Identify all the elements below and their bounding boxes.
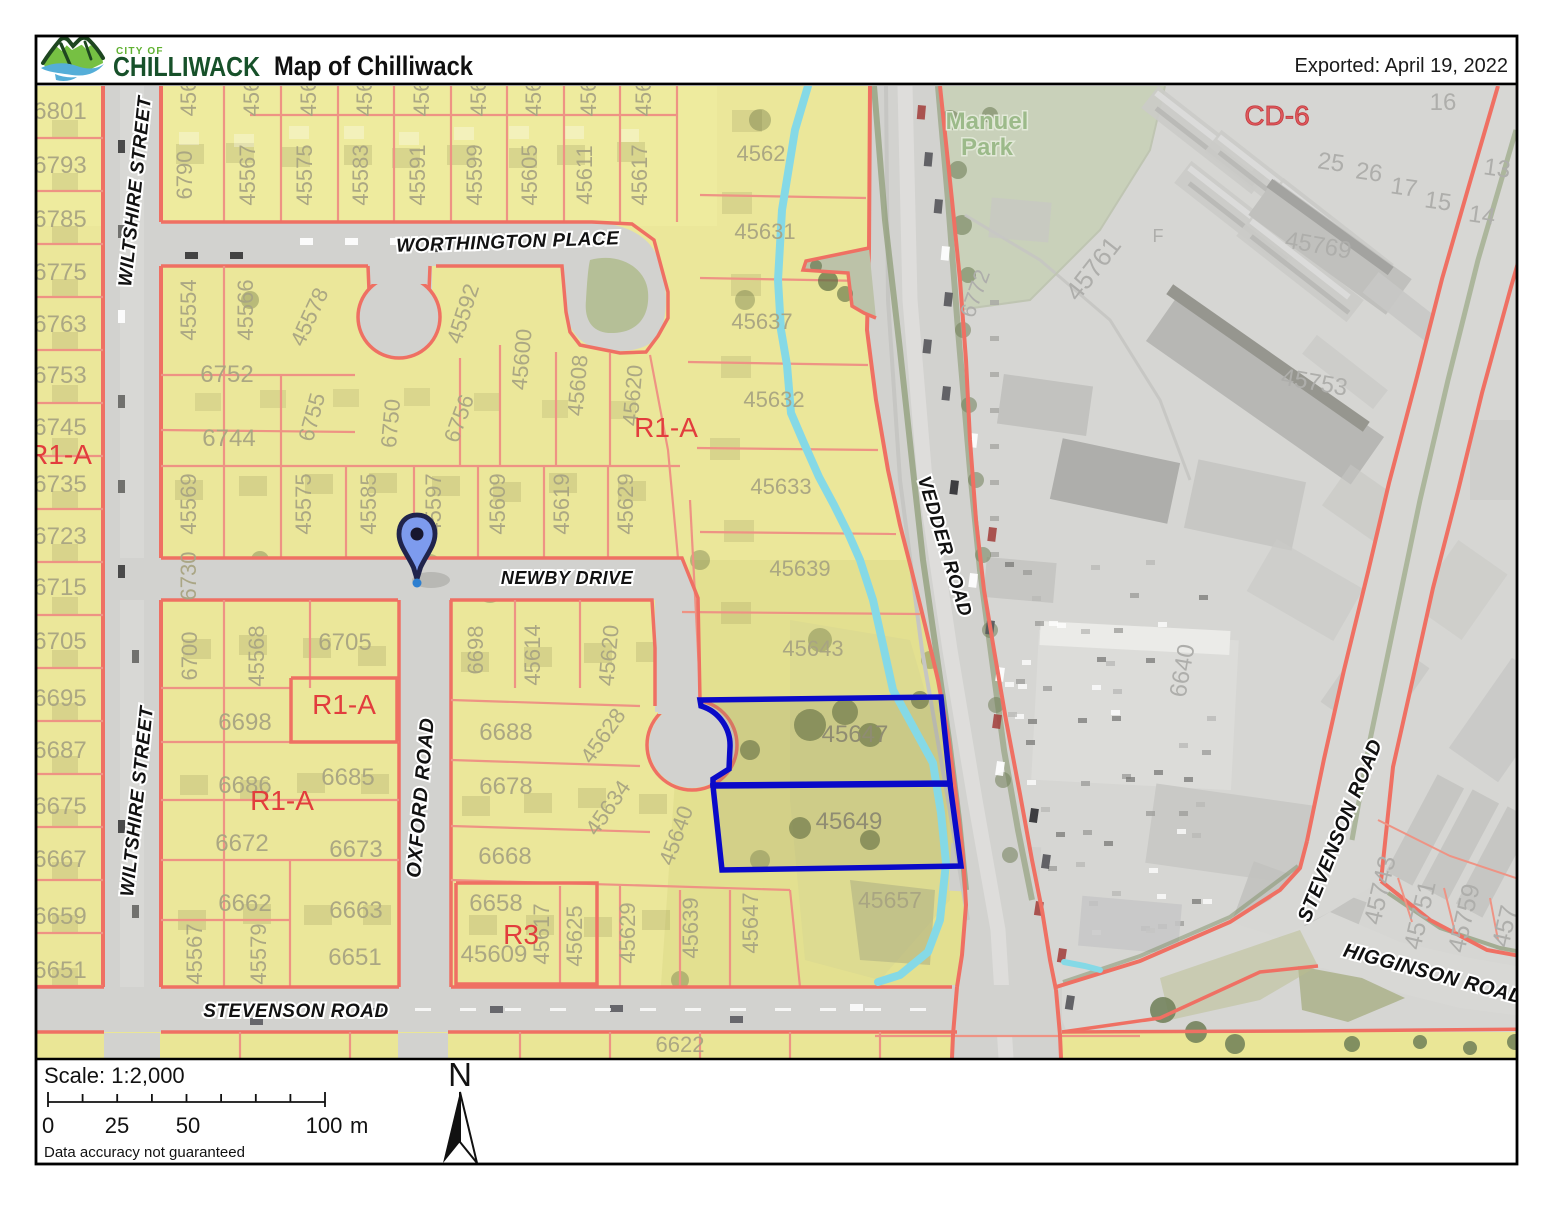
svg-text:6715: 6715	[33, 574, 86, 601]
svg-text:4562: 4562	[737, 141, 786, 166]
svg-text:26: 26	[1354, 157, 1384, 187]
svg-text:Data accuracy not guaranteed: Data accuracy not guaranteed	[44, 1144, 245, 1161]
svg-text:6705: 6705	[33, 628, 86, 655]
svg-text:6700: 6700	[177, 632, 202, 681]
svg-text:6763: 6763	[33, 311, 86, 338]
svg-text:16: 16	[1430, 89, 1457, 116]
svg-text:45609: 45609	[485, 473, 510, 534]
svg-text:45639: 45639	[678, 897, 703, 958]
svg-text:6659: 6659	[33, 903, 86, 930]
svg-text:45611: 45611	[572, 145, 597, 205]
svg-text:Manuel: Manuel	[946, 108, 1029, 135]
svg-text:14: 14	[1467, 200, 1497, 230]
svg-text:17: 17	[1389, 172, 1419, 202]
svg-text:45614: 45614	[520, 624, 545, 685]
svg-text:45591: 45591	[405, 144, 430, 205]
svg-text:45632: 45632	[743, 387, 804, 412]
svg-text:45629: 45629	[613, 473, 638, 534]
svg-text:6658: 6658	[469, 890, 522, 917]
svg-text:6685: 6685	[321, 764, 374, 791]
svg-text:R1-A: R1-A	[28, 439, 92, 470]
svg-text:45647: 45647	[822, 721, 889, 748]
svg-text:45575: 45575	[292, 144, 317, 205]
svg-text:6785: 6785	[33, 206, 86, 233]
svg-text:45639: 45639	[769, 556, 830, 581]
svg-text:45619: 45619	[549, 473, 574, 534]
svg-text:6730: 6730	[176, 552, 201, 601]
svg-text:R3: R3	[503, 919, 539, 950]
svg-text:6698: 6698	[463, 626, 488, 675]
svg-text:6735: 6735	[33, 471, 86, 498]
svg-text:0: 0	[42, 1113, 54, 1138]
svg-text:N: N	[448, 1056, 472, 1093]
svg-text:45583: 45583	[348, 144, 373, 205]
svg-text:6790: 6790	[172, 151, 197, 200]
svg-text:45637: 45637	[731, 309, 792, 334]
svg-text:45567: 45567	[182, 923, 207, 984]
svg-text:6673: 6673	[329, 836, 382, 863]
svg-text:6744: 6744	[202, 425, 255, 452]
svg-text:6695: 6695	[33, 685, 86, 712]
svg-text:6672: 6672	[215, 830, 268, 857]
svg-text:6745: 6745	[33, 414, 86, 441]
svg-text:45599: 45599	[462, 144, 487, 205]
svg-text:45649: 45649	[816, 808, 883, 835]
svg-text:45554: 45554	[176, 279, 201, 340]
svg-text:6750: 6750	[376, 398, 405, 449]
svg-text:45657: 45657	[858, 887, 922, 913]
svg-text:NEWBY DRIVE: NEWBY DRIVE	[501, 568, 634, 588]
svg-text:6687: 6687	[33, 737, 86, 764]
svg-text:6752: 6752	[200, 361, 253, 388]
svg-text:45569: 45569	[176, 473, 201, 534]
svg-text:13: 13	[1482, 153, 1512, 183]
svg-text:45620: 45620	[593, 624, 623, 687]
svg-text:45647: 45647	[738, 892, 763, 953]
svg-text:45585: 45585	[356, 473, 381, 534]
svg-text:100: 100	[306, 1113, 343, 1138]
svg-text:6775: 6775	[33, 259, 86, 286]
svg-text:6663: 6663	[329, 897, 382, 924]
svg-text:45633: 45633	[750, 474, 811, 499]
svg-text:R1-A: R1-A	[312, 689, 376, 720]
svg-text:6801: 6801	[33, 98, 86, 125]
svg-text:45629: 45629	[615, 902, 640, 963]
svg-text:Map of Chilliwack: Map of Chilliwack	[274, 51, 474, 81]
svg-text:45605: 45605	[517, 144, 542, 205]
svg-text:6668: 6668	[478, 843, 531, 870]
svg-text:R1-A: R1-A	[634, 412, 698, 443]
svg-text:6651: 6651	[328, 944, 381, 971]
svg-text:6793: 6793	[33, 152, 86, 179]
svg-text:R1-A: R1-A	[250, 785, 314, 816]
svg-text:6678: 6678	[479, 773, 532, 800]
svg-text:25: 25	[105, 1113, 129, 1138]
svg-text:45568: 45568	[244, 625, 269, 686]
svg-text:45643: 45643	[782, 636, 843, 661]
svg-text:6667: 6667	[33, 846, 86, 873]
svg-text:6651: 6651	[33, 957, 86, 984]
svg-text:m: m	[350, 1113, 368, 1138]
svg-text:F: F	[1153, 226, 1164, 246]
svg-text:45625: 45625	[562, 905, 587, 966]
svg-text:6705: 6705	[318, 629, 371, 656]
svg-text:6723: 6723	[33, 523, 86, 550]
svg-text:CHILLIWACK: CHILLIWACK	[113, 51, 260, 82]
svg-text:Exported: April 19, 2022: Exported: April 19, 2022	[1295, 55, 1508, 77]
svg-text:50: 50	[176, 1113, 200, 1138]
svg-text:CD-6: CD-6	[1244, 100, 1309, 131]
svg-text:45600: 45600	[506, 328, 536, 391]
svg-text:45608: 45608	[562, 354, 592, 417]
svg-text:25: 25	[1316, 147, 1346, 177]
svg-text:6662: 6662	[218, 890, 271, 917]
svg-text:45567: 45567	[235, 144, 260, 205]
svg-text:6698: 6698	[218, 709, 271, 736]
svg-text:45575: 45575	[291, 473, 316, 534]
svg-text:45617: 45617	[627, 144, 652, 205]
svg-text:Park: Park	[961, 134, 1014, 161]
svg-text:45631: 45631	[734, 219, 795, 244]
svg-text:Scale: 1:2,000: Scale: 1:2,000	[44, 1063, 185, 1088]
svg-text:STEVENSON ROAD: STEVENSON ROAD	[203, 1001, 388, 1022]
svg-text:45566: 45566	[233, 279, 258, 340]
svg-text:6622: 6622	[656, 1032, 705, 1057]
svg-text:6753: 6753	[33, 362, 86, 389]
svg-text:6688: 6688	[479, 719, 532, 746]
svg-text:6675: 6675	[33, 793, 86, 820]
svg-text:15: 15	[1423, 186, 1453, 216]
svg-text:45579: 45579	[246, 923, 271, 984]
